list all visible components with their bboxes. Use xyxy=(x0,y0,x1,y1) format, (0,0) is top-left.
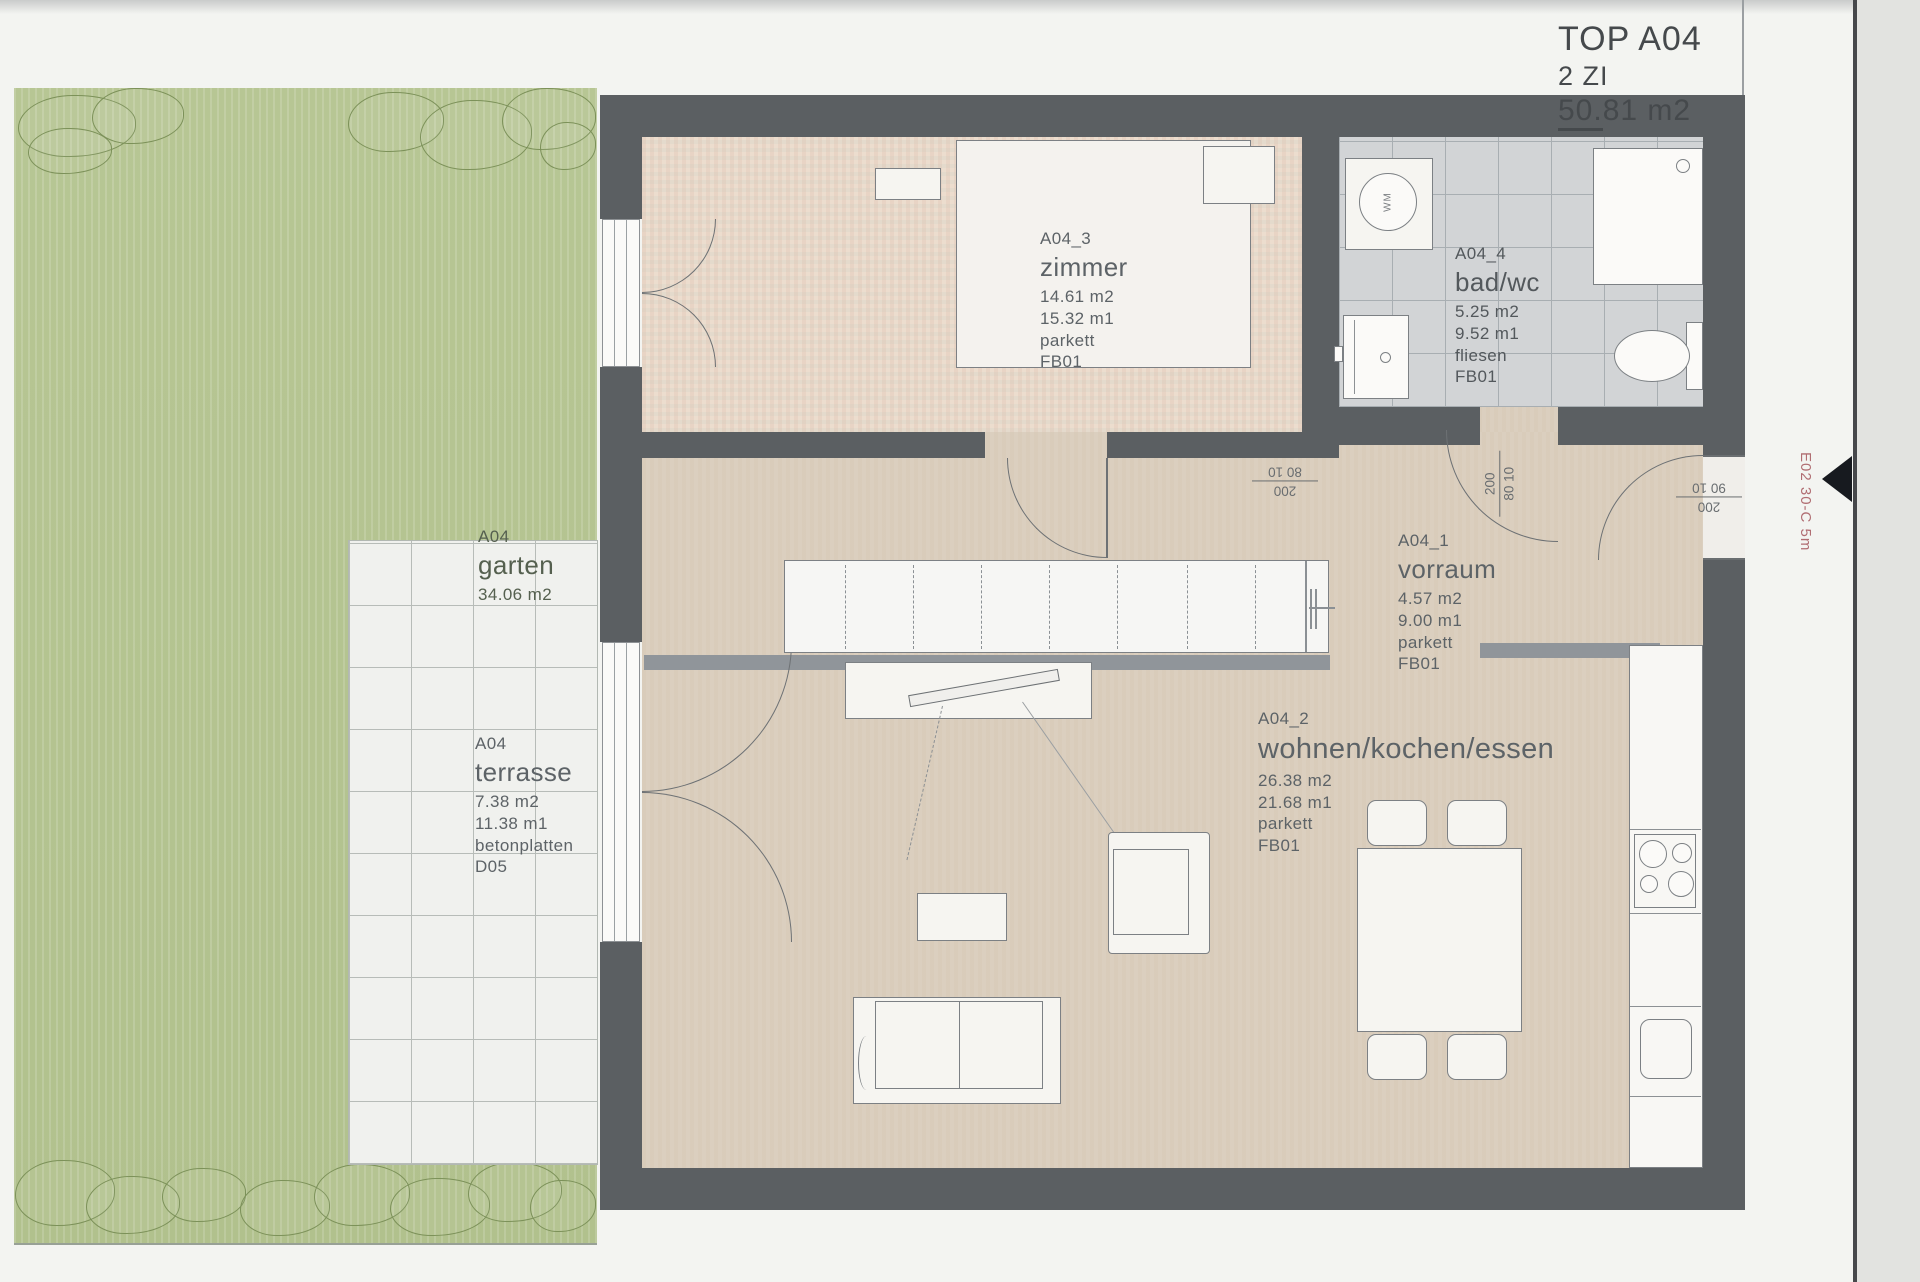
door-dimension-zimmer: 200 80 10 xyxy=(1252,462,1318,499)
cooktop xyxy=(1634,834,1696,908)
plot-boundary-line xyxy=(14,1243,597,1245)
floor-plan-page: 200 80 10 200 80 10 200 90 10 WM xyxy=(0,0,1920,1282)
area-label-garten: A04 garten 34.06 m2 xyxy=(478,526,554,606)
room-name: wohnen/kochen/essen xyxy=(1258,731,1554,768)
total-area-underlined: 50. xyxy=(1558,94,1603,131)
room-code: FB01 xyxy=(1455,366,1540,388)
room-id: A04_3 xyxy=(1040,228,1128,250)
area-size: 34.06 m2 xyxy=(478,584,554,606)
electrical-panel-icon xyxy=(1310,589,1317,629)
room-code: FB01 xyxy=(1040,351,1128,373)
pillow xyxy=(1203,146,1275,204)
door-width: 90 10 xyxy=(1676,478,1742,496)
room-code: FB01 xyxy=(1258,835,1554,857)
area-size: 7.38 m2 xyxy=(475,791,573,813)
room-name: bad/wc xyxy=(1455,266,1540,299)
sink-tap xyxy=(1334,346,1343,362)
room-count: 2 ZI xyxy=(1558,61,1702,92)
counter-section-line xyxy=(1630,1006,1701,1007)
door-height: 200 xyxy=(1481,451,1500,517)
wardrobe-divider xyxy=(1255,565,1256,649)
wardrobe-divider xyxy=(913,565,914,649)
door-height: 200 xyxy=(1252,480,1318,499)
room-perimeter: 9.52 m1 xyxy=(1455,323,1540,345)
wall-zimmer-bottom-right xyxy=(1107,432,1302,458)
room-perimeter: 9.00 m1 xyxy=(1398,610,1496,632)
dining-chair xyxy=(1447,1034,1507,1080)
cooktop-burner-icon xyxy=(1639,840,1667,868)
wall-left-upper xyxy=(600,95,642,219)
armchair xyxy=(1108,832,1210,954)
room-perimeter: 15.32 m1 xyxy=(1040,308,1128,330)
window-glass-line xyxy=(626,220,627,366)
door-dimension-bad: 200 80 10 xyxy=(1481,451,1518,517)
area-name: garten xyxy=(478,549,554,582)
wall-left-middle xyxy=(600,367,642,642)
cooktop-burner-icon xyxy=(1668,871,1694,897)
armchair-seat xyxy=(1113,849,1189,935)
door-height: 200 xyxy=(1676,496,1742,515)
screen-top-edge xyxy=(0,0,1920,14)
kitchen-counter xyxy=(1629,645,1703,1168)
area-code: D05 xyxy=(475,856,573,878)
cooktop-burner-icon xyxy=(1640,875,1658,893)
room-floor: fliesen xyxy=(1455,345,1540,367)
area-label-terrasse: A04 terrasse 7.38 m2 11.38 m1 betonplatt… xyxy=(475,733,573,878)
toilet-bowl xyxy=(1614,330,1690,382)
total-area: 50.81 m2 xyxy=(1558,94,1702,128)
room-area: 14.61 m2 xyxy=(1040,286,1128,308)
door-leaf-zimmer-room xyxy=(1106,458,1108,558)
wall-bottom xyxy=(600,1168,1745,1210)
electrical-panel-line xyxy=(1309,607,1335,609)
elevation-annotation: E02 30-C 5m xyxy=(1797,452,1814,551)
wardrobe-divider xyxy=(981,565,982,649)
area-id: A04 xyxy=(475,733,573,755)
wardrobe-divider xyxy=(1049,565,1050,649)
area-name: terrasse xyxy=(475,756,573,789)
room-id: A04_1 xyxy=(1398,530,1496,552)
room-name: zimmer xyxy=(1040,251,1128,284)
washing-machine-label: WM xyxy=(1383,192,1394,212)
room-area: 5.25 m2 xyxy=(1455,301,1540,323)
room-area: 4.57 m2 xyxy=(1398,588,1496,610)
shower xyxy=(1593,148,1703,285)
room-floor: parkett xyxy=(1040,330,1128,352)
room-floor: parkett xyxy=(1398,632,1496,654)
room-label-vorraum: A04_1 vorraum 4.57 m2 9.00 m1 parkett FB… xyxy=(1398,530,1496,675)
built-in-wardrobe xyxy=(784,560,1329,653)
wall-right-upper xyxy=(1703,95,1745,455)
shower-drain-icon xyxy=(1676,159,1690,173)
counter-section-line xyxy=(1630,913,1701,914)
window-glass-line xyxy=(626,643,627,941)
room-code: FB01 xyxy=(1398,653,1496,675)
wardrobe-end-divider xyxy=(1305,561,1307,652)
wall-right-lower xyxy=(1703,560,1745,1210)
door-dimension-entrance: 200 90 10 xyxy=(1676,478,1742,515)
counter-section-line xyxy=(1630,1096,1701,1097)
wardrobe-divider xyxy=(1117,565,1118,649)
area-floor: betonplatten xyxy=(475,835,573,857)
sink-drain-icon xyxy=(1380,352,1391,363)
room-name: vorraum xyxy=(1398,553,1496,586)
room-id: A04_4 xyxy=(1455,243,1540,265)
total-area-rest: 81 m2 xyxy=(1603,94,1691,127)
wall-bad-bottom-right xyxy=(1558,407,1703,445)
washing-machine-drum-icon: WM xyxy=(1359,173,1417,231)
wall-zimmer-bottom-left xyxy=(642,432,985,458)
sofa-armrest-curve xyxy=(858,1036,875,1090)
room-perimeter: 21.68 m1 xyxy=(1258,792,1554,814)
window-zimmer xyxy=(602,219,640,367)
sofa-cushion-divider xyxy=(959,1001,960,1089)
room-label-wohnen: A04_2 wohnen/kochen/essen 26.38 m2 21.68… xyxy=(1258,708,1554,857)
cooktop-burner-icon xyxy=(1672,843,1692,863)
wardrobe-divider xyxy=(845,565,846,649)
dining-chair xyxy=(1367,1034,1427,1080)
sink-divider-line xyxy=(1354,320,1355,394)
unit-title: TOP A04 xyxy=(1558,20,1702,59)
room-label-zimmer: A04_3 zimmer 14.61 m2 15.32 m1 parkett F… xyxy=(1040,228,1128,373)
coffee-table xyxy=(917,893,1007,941)
washing-machine: WM xyxy=(1345,158,1433,250)
room-label-bad: A04_4 bad/wc 5.25 m2 9.52 m1 fliesen FB0… xyxy=(1455,243,1540,388)
window-terrace-doors xyxy=(602,642,640,942)
area-perimeter: 11.38 m1 xyxy=(475,813,573,835)
plan-frame-line xyxy=(1742,0,1744,96)
marker-triangle-icon xyxy=(1822,456,1852,502)
door-width: 80 10 xyxy=(1252,462,1318,480)
title-block: TOP A04 2 ZI 50.81 m2 xyxy=(1558,20,1702,128)
counter-section-line xyxy=(1630,829,1701,830)
nightstand xyxy=(875,168,941,200)
sofa xyxy=(853,997,1061,1104)
room-id: A04_2 xyxy=(1258,708,1554,730)
dining-table xyxy=(1357,848,1522,1032)
room-area: 26.38 m2 xyxy=(1258,770,1554,792)
kitchen-sink xyxy=(1640,1019,1692,1079)
window-glass-line xyxy=(614,643,615,941)
wardrobe-divider xyxy=(1187,565,1188,649)
page-right-margin xyxy=(1857,0,1920,1282)
bathroom-sink xyxy=(1343,315,1409,399)
window-glass-line xyxy=(614,220,615,366)
room-floor: parkett xyxy=(1258,813,1554,835)
area-id: A04 xyxy=(478,526,554,548)
door-width: 80 10 xyxy=(1501,451,1519,517)
